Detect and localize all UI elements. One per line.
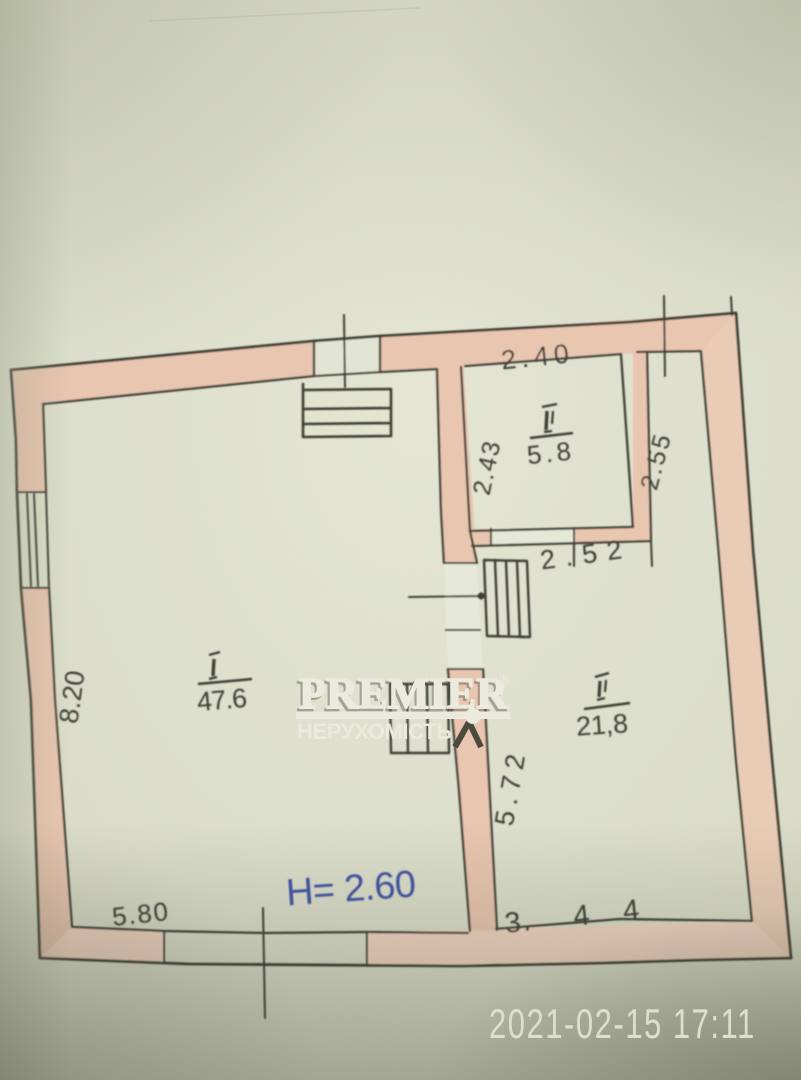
svg-text:®: ® xyxy=(499,672,510,688)
svg-text:2021-02-15 17:11: 2021-02-15 17:11 xyxy=(489,1000,756,1047)
svg-text:НЕРУХОМІСТЬ: НЕРУХОМІСТЬ xyxy=(297,719,452,744)
